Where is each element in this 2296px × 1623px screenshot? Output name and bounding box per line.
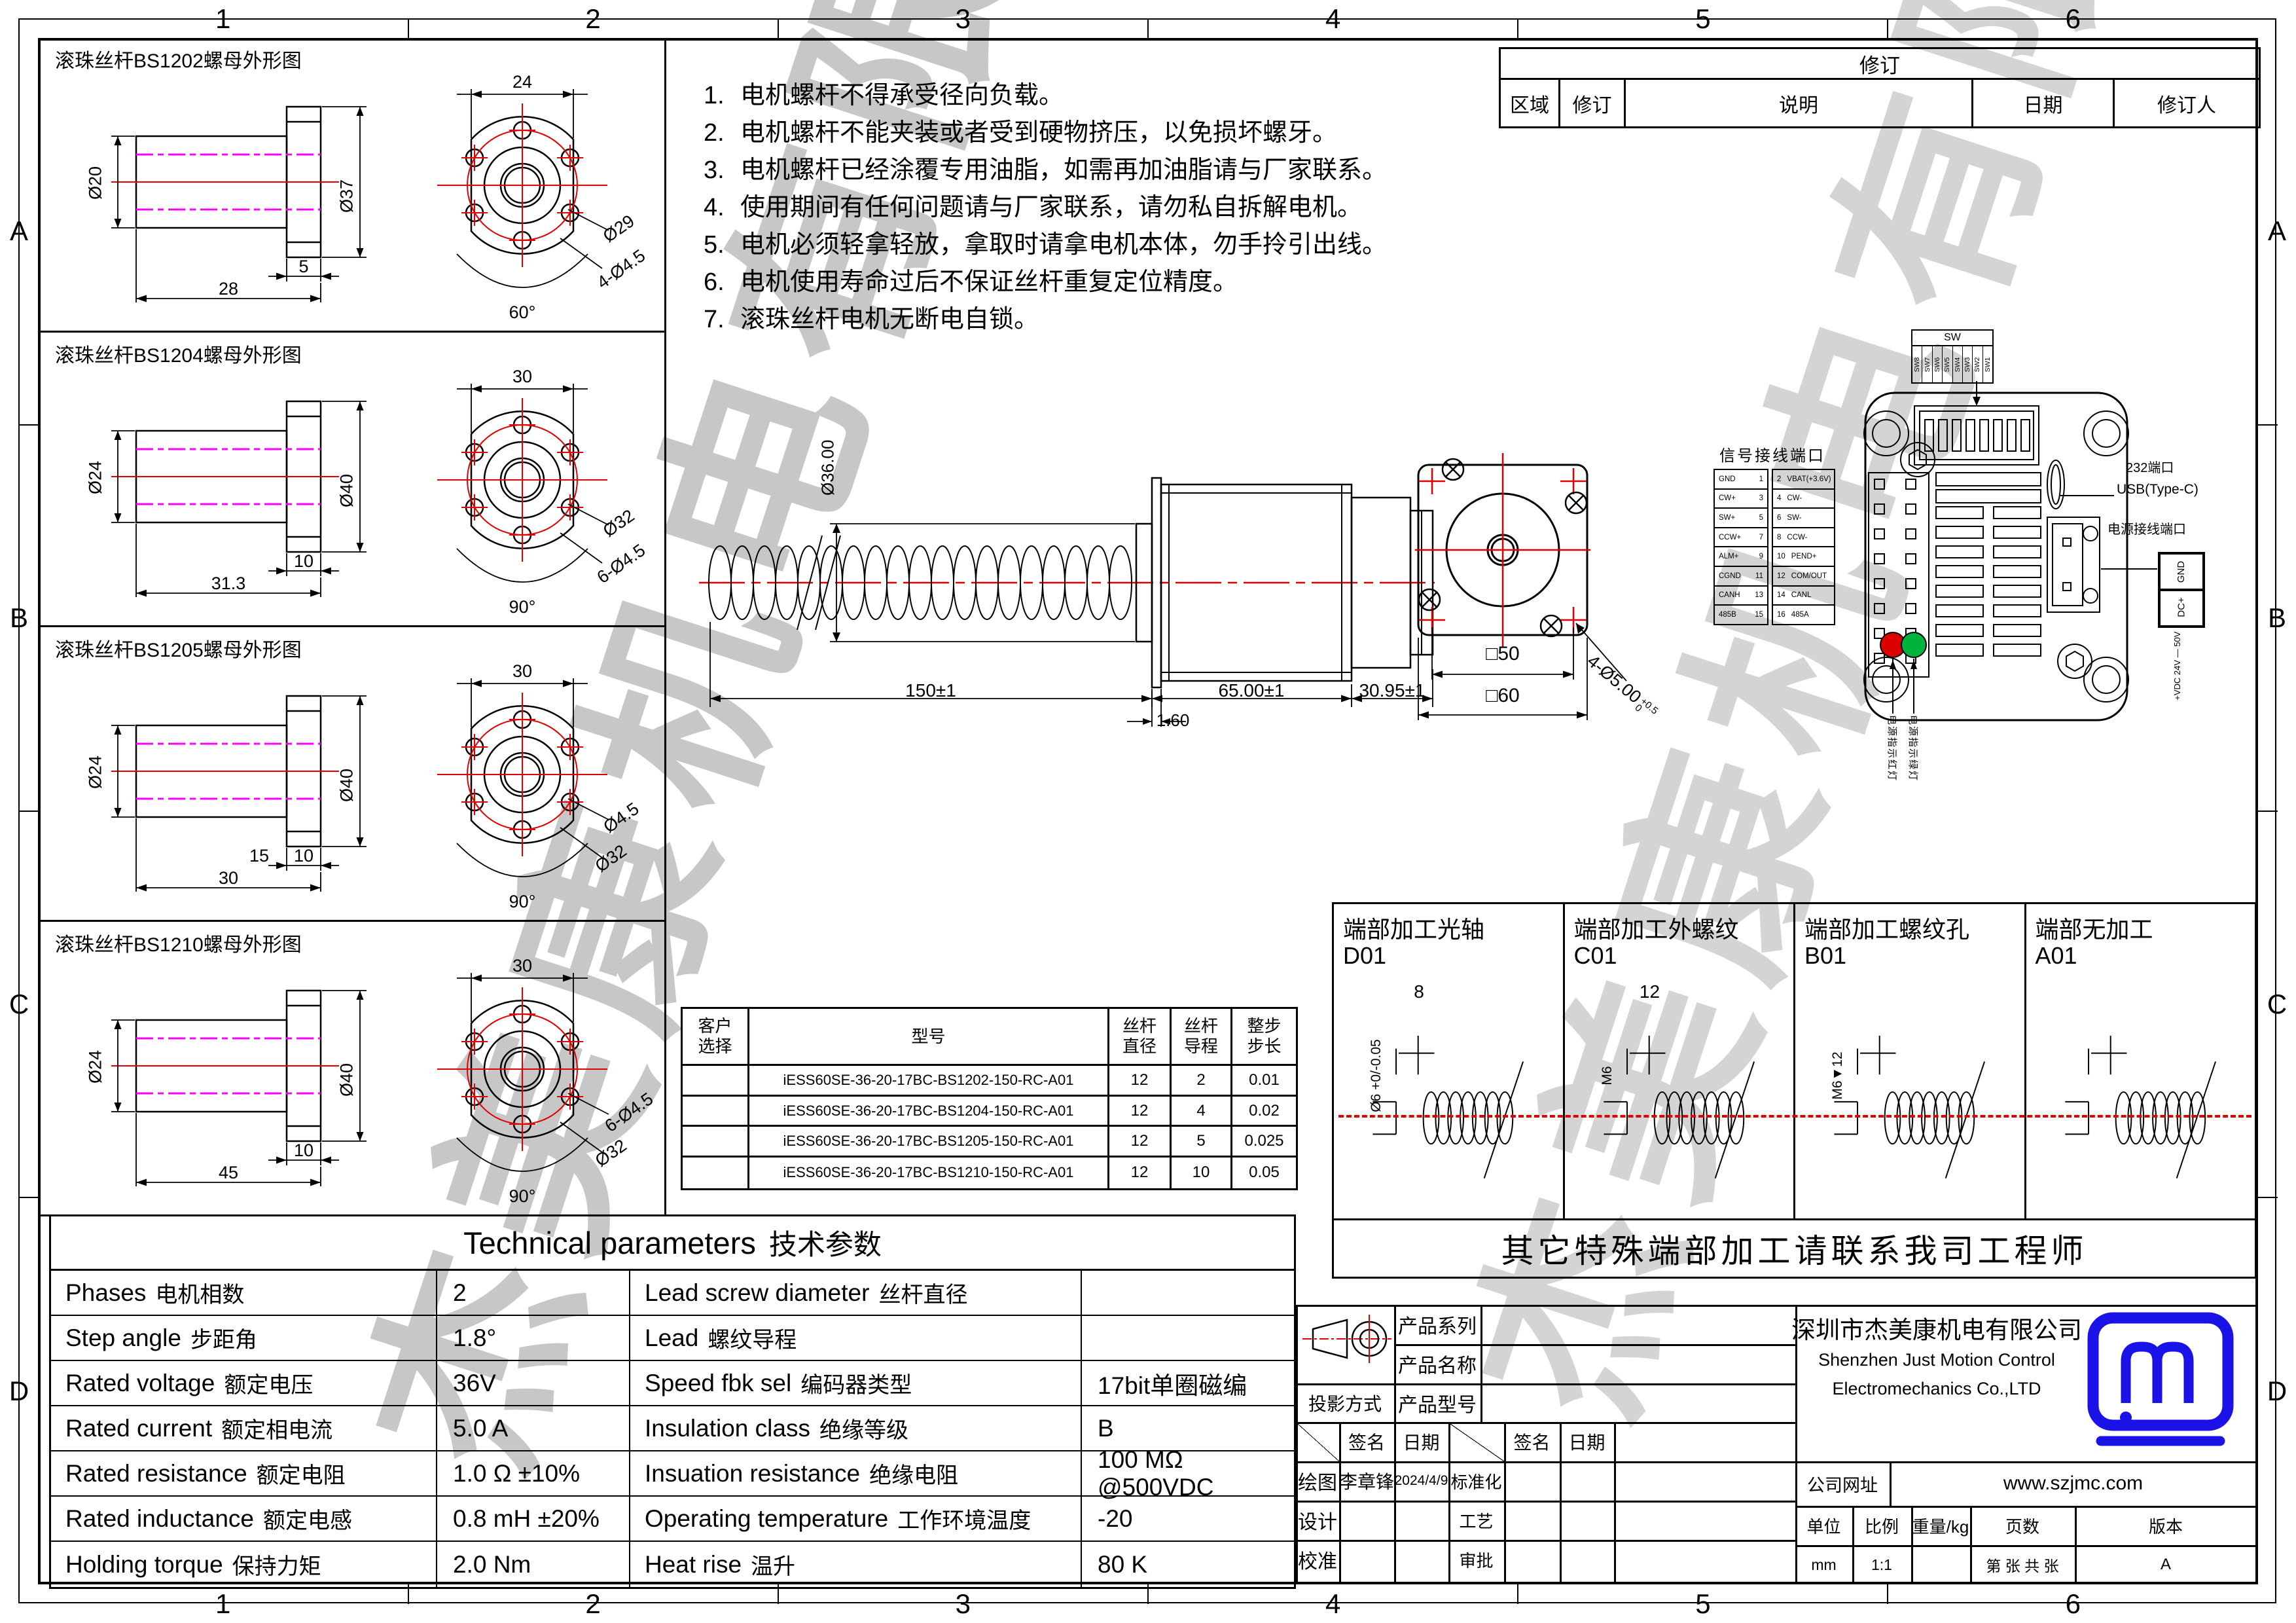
power-range-label: +VDC 24V — 50V xyxy=(2173,617,2182,715)
pin-number-left: 13 xyxy=(1755,591,1763,599)
tech-row: Holding torque保持力矩 2.0 Nm Heat rise温升 80… xyxy=(51,1542,1294,1587)
pin-name-right: CW- xyxy=(1787,494,1802,502)
sw-label-cell: SW3 xyxy=(1963,346,1973,382)
sw-label: SW3 xyxy=(1964,357,1971,372)
revision-col-desc: 说明 xyxy=(1626,80,1973,126)
note-number: 6. xyxy=(704,264,740,301)
zone-label: 1 xyxy=(38,1589,408,1619)
nut-panel: 滚珠丝杆BS1205螺母外形图 Ø24 Ø40 10 15 30 30 Ø4.5… xyxy=(38,627,664,922)
thread-drawing xyxy=(2026,963,2255,1218)
note-text: 电机螺杆已经涂覆专用油脂，如需再加油脂请与厂家联系。 xyxy=(740,152,1387,189)
param-name-en: Lead screw diameter xyxy=(645,1279,869,1307)
zone-label: A xyxy=(2262,38,2292,425)
pin-name-left: CANH xyxy=(1719,591,1740,599)
param-name-en: Rated inductance xyxy=(65,1505,254,1533)
pin-number-left: 5 xyxy=(1759,514,1763,522)
sw-label: SW4 xyxy=(1954,357,1962,372)
signal-row: CANH13 14CANL xyxy=(1713,587,1835,606)
pin-number-right: 10 xyxy=(1777,553,1785,560)
param-value: 5.0 A xyxy=(453,1415,508,1442)
param-name-en: Rated voltage xyxy=(65,1370,215,1397)
dim-outer-dia: Ø40 xyxy=(337,1049,357,1112)
end-option-column: 端部加工光轴 D01 8 Ø6 +0/-0.05 xyxy=(1334,904,1565,1218)
model-number: iESS60SE-36-20-17BC-BS1202-150-RC-A01 xyxy=(749,1066,1109,1097)
product-name-value xyxy=(1480,1344,1795,1383)
note-number: 2. xyxy=(704,115,740,152)
param-name-en: Operating temperature xyxy=(645,1505,888,1533)
signal-row: GND1 2VBAT(+3.6V) xyxy=(1713,470,1835,490)
pin-number-right: 16 xyxy=(1777,611,1785,619)
end-option-column: 端部加工外螺纹 C01 12 M6 xyxy=(1565,904,1796,1218)
pin-name-right: CCW- xyxy=(1787,534,1807,541)
power-port-title: 电源接线端口 xyxy=(2081,522,2212,537)
dim-len-c: 31.3 xyxy=(202,574,255,594)
end-option-title: 端部加工螺纹孔 xyxy=(1804,911,1969,945)
dim-plate-thickness: 1.60 xyxy=(1147,711,1199,730)
pin-number-left: 3 xyxy=(1759,494,1763,502)
note-line: 6. 电机使用寿命过后不保证丝杆重复定位精度。 xyxy=(704,264,1515,301)
param-name-cn: 步距角 xyxy=(190,1322,257,1354)
revision-col-area: 区域 xyxy=(1501,80,1560,126)
sw-label: SW8 xyxy=(1913,357,1921,372)
sw-label-cell: SW2 xyxy=(1973,346,1982,382)
pin-number-right: 2 xyxy=(1777,475,1781,483)
dim-len-c: 30 xyxy=(202,868,255,888)
company-name-en1: Shenzhen Just Motion Control xyxy=(1795,1346,2078,1374)
end-option-dia: M6▼12 xyxy=(1830,1027,1846,1125)
zone-letters-left: ABCD xyxy=(4,38,34,1584)
dim-len-c: 28 xyxy=(202,279,255,299)
signal-row: CW+3 4CW- xyxy=(1713,490,1835,509)
header-select: 客户 选择 xyxy=(683,1009,749,1066)
company-logo xyxy=(2081,1313,2238,1451)
select-cell[interactable] xyxy=(683,1158,749,1188)
sw-table-labels: SW8SW7SW6SW5SW4SW3SW2SW1 xyxy=(1911,346,1994,384)
tech-row: Phases电机相数 2 Lead screw diameter丝杆直径 xyxy=(51,1271,1294,1316)
pin-name-left: CCW+ xyxy=(1719,534,1741,541)
dim-square-60: □60 xyxy=(1470,685,1535,706)
screw-lead: 10 xyxy=(1172,1158,1232,1188)
dim-inner-dia: Ø24 xyxy=(86,741,106,804)
param-value: B xyxy=(1098,1415,1114,1442)
dim-flange-dia: Ø36.00 xyxy=(819,425,838,510)
dim-front-width: 24 xyxy=(496,72,548,92)
full-step: 0.01 xyxy=(1232,1066,1296,1097)
end-option-code: A01 xyxy=(2036,942,2077,970)
dim-len-c: 45 xyxy=(202,1163,255,1183)
role-row: 设计 xyxy=(1296,1501,1448,1540)
param-value: -20 xyxy=(1098,1505,1132,1533)
pin-name-right: 485A xyxy=(1791,611,1809,619)
end-option-column: 端部无加工 A01 xyxy=(2026,904,2255,1218)
screw-lead: 4 xyxy=(1172,1097,1232,1127)
roles-left: 绘图 李章锋 2024/4/9 设计 校准 xyxy=(1296,1461,1448,1579)
zone-label: 4 xyxy=(1148,4,1518,34)
projection-symbol xyxy=(1299,1307,1394,1381)
pin-number-right: 8 xyxy=(1777,534,1781,541)
model-row: iESS60SE-36-20-17BC-BS1210-150-RC-A01 12… xyxy=(683,1158,1296,1188)
role-label: 工艺 xyxy=(1448,1501,1504,1540)
date-header-left: 日期 xyxy=(1394,1422,1448,1461)
zone-label: 1 xyxy=(38,4,408,34)
param-name-en: Step angle xyxy=(65,1324,181,1352)
model-table-header: 客户 选择 型号 丝杆 直径 丝杆 导程 整步 步长 xyxy=(683,1009,1296,1066)
note-line: 7. 滚珠丝杆电机无断电自锁。 xyxy=(704,301,1515,338)
zone-label: 2 xyxy=(408,4,778,34)
pin-number-left: 15 xyxy=(1755,611,1763,619)
tech-row: Rated voltage额定电压 36V Speed fbk sel编码器类型… xyxy=(51,1361,1294,1406)
nut-panel-title: 滚珠丝杆BS1202螺母外形图 xyxy=(55,45,302,73)
role-date xyxy=(1394,1540,1448,1579)
company-name-cn: 深圳市杰美康机电有限公司 xyxy=(1795,1311,2078,1345)
param-name-cn: 工作环境温度 xyxy=(897,1503,1031,1535)
scale-value: 1:1 xyxy=(1852,1545,1911,1584)
power-leader-line xyxy=(2101,568,2157,570)
dim-len-a: 10 xyxy=(284,1140,323,1161)
revision-col-rev: 修订 xyxy=(1560,80,1626,126)
param-name-cn: 绝缘电阻 xyxy=(869,1457,958,1489)
signal-row: CGND11 12COM/OUT xyxy=(1713,567,1835,587)
usb-leader-line xyxy=(2060,495,2114,496)
note-line: 3. 电机螺杆已经涂覆专用油脂，如需再加油脂请与厂家联系。 xyxy=(704,152,1515,189)
product-model-value xyxy=(1480,1383,1795,1422)
sw-label: SW7 xyxy=(1924,357,1931,372)
sw-label: SW2 xyxy=(1973,357,1981,372)
param-value: 17bit单圈磁编 xyxy=(1098,1366,1247,1401)
dim-front-width: 30 xyxy=(496,367,548,387)
pin-name-right: COM/OUT xyxy=(1791,572,1827,580)
header-step: 整步 步长 xyxy=(1232,1009,1296,1066)
end-option-code: D01 xyxy=(1343,942,1386,970)
note-number: 7. xyxy=(704,301,740,338)
port-232-label: 232端口 xyxy=(2126,461,2174,475)
param-name-cn: 额定电阻 xyxy=(257,1457,346,1489)
zone-letters-right: ABCD xyxy=(2262,38,2292,1584)
dim-inner-dia: Ø24 xyxy=(86,1036,106,1099)
dim-inner-dia: Ø24 xyxy=(86,447,106,509)
power-pin-gnd: GND xyxy=(2158,552,2205,591)
role-date: 2024/4/9 xyxy=(1394,1461,1448,1501)
zone-label: 4 xyxy=(1148,1589,1518,1619)
pin-name-left: 485B xyxy=(1719,611,1736,619)
dc-pin-label: DC+ xyxy=(2176,597,2187,617)
param-name-en: Lead xyxy=(645,1324,698,1352)
role-label: 审批 xyxy=(1448,1540,1504,1579)
sw-table-title: SW xyxy=(1911,329,1994,346)
pin-number-right: 12 xyxy=(1777,572,1785,580)
usb-type-c-label: USB(Type-C) xyxy=(2117,482,2198,497)
param-value: 80 K xyxy=(1098,1551,1147,1578)
model-row: iESS60SE-36-20-17BC-BS1205-150-RC-A01 12… xyxy=(683,1127,1296,1158)
company-name-en2: Electromechanics Co.,LTD xyxy=(1795,1375,2078,1402)
nut-panel-title: 滚珠丝杆BS1205螺母外形图 xyxy=(55,634,302,663)
model-row: iESS60SE-36-20-17BC-BS1202-150-RC-A01 12… xyxy=(683,1066,1296,1097)
dim-outer-dia: Ø37 xyxy=(337,165,357,228)
zone-label: C xyxy=(2262,811,2292,1198)
dim-front-width: 30 xyxy=(496,661,548,682)
select-cell[interactable] xyxy=(683,1066,749,1097)
role-row: 校准 xyxy=(1296,1540,1448,1579)
signal-row: CCW+7 8CCW- xyxy=(1713,528,1835,548)
param-name-cn: 编码器类型 xyxy=(800,1367,912,1399)
screw-dia: 12 xyxy=(1109,1158,1172,1188)
dim-len-b: 15 xyxy=(240,846,279,866)
website-url[interactable]: www.szjmc.com xyxy=(1890,1461,2257,1506)
sw-label-cell: SW8 xyxy=(1912,346,1922,382)
role-date xyxy=(1560,1540,1614,1579)
pin-name-left: CGND xyxy=(1719,572,1741,580)
role-signature xyxy=(1339,1501,1394,1540)
revision-table: 修订 区域 修订 说明 日期 修订人 xyxy=(1499,47,2261,128)
param-name-en: Insulation class xyxy=(645,1415,810,1442)
revision-col-by: 修订人 xyxy=(2115,80,2259,126)
dim-len-a: 10 xyxy=(284,846,323,866)
param-name-cn: 电机相数 xyxy=(155,1277,244,1309)
param-value: 1.8° xyxy=(453,1324,496,1352)
param-name-en: Phases xyxy=(65,1279,146,1307)
role-signature xyxy=(1504,1461,1560,1501)
diagonal-header-cell xyxy=(1450,1424,1504,1461)
param-name-en: Insuation resistance xyxy=(645,1460,860,1487)
thread-drawing xyxy=(1565,963,1794,1218)
signal-row: ALM+9 10PEND+ xyxy=(1713,547,1835,567)
header-lead: 丝杆 导程 xyxy=(1172,1009,1232,1066)
pin-number-left: 1 xyxy=(1759,475,1763,483)
zone-label: D xyxy=(4,1198,34,1585)
dim-len-a: 10 xyxy=(284,551,323,572)
screw-dia: 12 xyxy=(1109,1127,1172,1158)
dim-angle: 90° xyxy=(496,1186,548,1207)
note-line: 2. 电机螺杆不能夹装或者受到硬物挤压，以免损坏螺牙。 xyxy=(704,115,1515,152)
screw-lead: 5 xyxy=(1172,1127,1232,1158)
unit-label: 单位 xyxy=(1795,1506,1852,1545)
website-label: 公司网址 xyxy=(1795,1461,1890,1506)
end-options-centerline xyxy=(1338,1115,2251,1118)
pin-name-left: SW+ xyxy=(1719,514,1735,522)
param-value: 36V xyxy=(453,1370,496,1397)
dim-square-50: □50 xyxy=(1470,643,1535,665)
model-number: iESS60SE-36-20-17BC-BS1204-150-RC-A01 xyxy=(749,1097,1109,1127)
sw-label: SW5 xyxy=(1943,357,1951,372)
model-selection-table: 客户 选择 型号 丝杆 直径 丝杆 导程 整步 步长 iESS60SE-36-2… xyxy=(681,1007,1298,1190)
usage-notes: 1. 电机螺杆不得承受径向负载。 2. 电机螺杆不能夹装或者受到硬物挤压，以免损… xyxy=(704,77,1515,338)
role-date xyxy=(1560,1461,1614,1501)
end-option-length: 12 xyxy=(1627,981,1673,1002)
full-step: 0.05 xyxy=(1232,1158,1296,1188)
param-name-cn: 温升 xyxy=(751,1548,795,1580)
param-name-cn: 额定电感 xyxy=(263,1503,352,1535)
roles-right: 标准化 工艺 审批 xyxy=(1448,1461,1614,1579)
note-number: 4. xyxy=(704,189,740,227)
tech-row: Rated inductance额定电感 0.8 mH ±20% Operati… xyxy=(51,1497,1294,1542)
zone-label: 6 xyxy=(1888,4,2258,34)
end-option-dia: M6 xyxy=(1600,1027,1615,1125)
pin-number-right: 4 xyxy=(1777,494,1781,502)
diagonal-header-cell xyxy=(1298,1424,1339,1461)
ballscrew-nut-panels: 滚珠丝杆BS1202螺母外形图 Ø20 Ø37 5 28 24 Ø29 4-Ø4… xyxy=(38,38,666,1216)
zone-label: B xyxy=(2262,425,2292,812)
signal-port-title: 信号接线端口 xyxy=(1702,448,1843,465)
nut-panel: 滚珠丝杆BS1210螺母外形图 Ø24 Ø40 10 45 30 6-Ø4.5 … xyxy=(38,922,664,1216)
param-value: 0.8 mH ±20% xyxy=(453,1505,600,1533)
gnd-pin-label: GND xyxy=(2176,560,2187,582)
param-name-en: Rated resistance xyxy=(65,1460,247,1487)
led-green-label: 电源指示绿灯 xyxy=(1907,715,1920,782)
zone-label: 6 xyxy=(1888,1589,2258,1619)
product-model-label: 产品型号 xyxy=(1394,1383,1480,1422)
note-text: 电机必须轻拿轻放，拿取时请拿电机本体，勿手拎引出线。 xyxy=(740,227,1387,264)
param-name-en: Holding torque xyxy=(65,1551,223,1578)
driver-rear-view xyxy=(1852,308,2140,877)
unit-value: mm xyxy=(1795,1545,1852,1584)
screw-dia: 12 xyxy=(1109,1066,1172,1097)
tech-row: Step angle步距角 1.8° Lead螺纹导程 xyxy=(51,1316,1294,1361)
header-dia: 丝杆 直径 xyxy=(1109,1009,1172,1066)
dim-len-a: 5 xyxy=(284,257,323,277)
select-cell[interactable] xyxy=(683,1097,749,1127)
note-number: 1. xyxy=(704,77,740,115)
pin-name-right: VBAT(+3.6V) xyxy=(1787,475,1831,483)
signal-row: 485B15 16485A xyxy=(1713,606,1835,625)
pin-number-right: 14 xyxy=(1777,591,1785,599)
role-date xyxy=(1394,1501,1448,1540)
note-line: 4. 使用期间有任何问题请与厂家联系，请勿私自拆解电机。 xyxy=(704,189,1515,227)
end-machining-options: 端部加工光轴 D01 8 Ø6 +0/-0.05 xyxy=(1332,902,2257,1279)
zone-label: B xyxy=(4,425,34,812)
note-line: 1. 电机螺杆不得承受径向负载。 xyxy=(704,77,1515,115)
drawing-sheet: 杰美康机电有限公司 杰美康机电有限公司 123456 123456 ABCD A… xyxy=(0,0,2296,1623)
zone-label: C xyxy=(4,811,34,1198)
revision-col-date: 日期 xyxy=(1973,80,2115,126)
zone-label: A xyxy=(4,38,34,425)
dim-front-width: 30 xyxy=(496,956,548,976)
pages-label: 页数 xyxy=(1970,1506,2075,1545)
param-name-en: Heat rise xyxy=(645,1551,742,1578)
led-red-label: 电源指示红灯 xyxy=(1886,715,1899,782)
sw-table: SW SW8SW7SW6SW5SW4SW3SW2SW1 xyxy=(1911,329,1994,384)
scale-label: 比例 xyxy=(1852,1506,1911,1545)
version-value: A xyxy=(2075,1545,2257,1584)
nut-panel: 滚珠丝杆BS1204螺母外形图 Ø24 Ø40 10 31.3 30 Ø32 6… xyxy=(38,333,664,627)
sw-label-cell: SW6 xyxy=(1933,346,1943,382)
note-number: 5. xyxy=(704,227,740,264)
role-row: 工艺 xyxy=(1448,1501,1614,1540)
zone-label: 3 xyxy=(778,1589,1148,1619)
param-name-en: Rated current xyxy=(65,1415,212,1442)
technical-parameters-table: Technical parameters 技术参数 Phases电机相数 2 L… xyxy=(49,1214,1296,1589)
pin-name-left: ALM+ xyxy=(1719,553,1738,560)
weight-label: 重量/kg xyxy=(1911,1506,1970,1545)
end-machining-note: 其它特殊端部加工请联系我司工程师 xyxy=(1334,1218,2255,1277)
role-row: 标准化 xyxy=(1448,1461,1614,1501)
end-option-title: 端部无加工 xyxy=(2036,911,2153,945)
pin-name-right: SW- xyxy=(1787,514,1801,522)
pin-name-left: CW+ xyxy=(1719,494,1736,502)
dim-inner-dia: Ø20 xyxy=(86,152,106,215)
screw-dia: 12 xyxy=(1109,1097,1172,1127)
sw-label-cell: SW7 xyxy=(1922,346,1932,382)
param-name-cn: 螺纹导程 xyxy=(708,1322,797,1354)
version-label: 版本 xyxy=(2075,1506,2257,1545)
sw-label-cell: SW1 xyxy=(1983,346,1992,382)
select-cell[interactable] xyxy=(683,1127,749,1158)
param-name-en: Speed fbk sel xyxy=(645,1370,791,1397)
revision-title: 修订 xyxy=(1501,49,2259,80)
zone-label: 2 xyxy=(408,1589,778,1619)
role-label: 绘图 xyxy=(1296,1461,1339,1501)
dim-body-length: 65.00±1 xyxy=(1199,681,1304,701)
note-text: 使用期间有任何问题请与厂家联系，请勿私自拆解电机。 xyxy=(740,189,1362,227)
signal-row: SW+5 6SW- xyxy=(1713,509,1835,528)
role-label: 设计 xyxy=(1296,1501,1339,1540)
role-signature xyxy=(1504,1501,1560,1540)
param-value: 100 MΩ @500VDC xyxy=(1098,1446,1298,1501)
param-value: 2.0 Nm xyxy=(453,1551,531,1578)
date-header-right: 日期 xyxy=(1560,1422,1614,1461)
nut-panel-title: 滚珠丝杆BS1204螺母外形图 xyxy=(55,339,302,368)
zone-label: D xyxy=(2262,1198,2292,1585)
end-option-code: B01 xyxy=(1804,942,1846,970)
role-date xyxy=(1560,1501,1614,1540)
header-model: 型号 xyxy=(749,1009,1109,1066)
tech-row: Rated resistance额定电阻 1.0 Ω ±10% Insuatio… xyxy=(51,1451,1294,1497)
pin-number-left: 11 xyxy=(1755,572,1763,580)
sign-header-left: 签名 xyxy=(1339,1422,1394,1461)
product-series-value xyxy=(1480,1305,1795,1344)
param-name-cn: 绝缘等级 xyxy=(819,1412,908,1444)
param-name-cn: 丝杆直径 xyxy=(878,1277,967,1309)
role-label: 校准 xyxy=(1296,1540,1339,1579)
param-name-cn: 额定相电流 xyxy=(221,1412,332,1444)
pin-number-right: 6 xyxy=(1777,514,1781,522)
weight-value xyxy=(1911,1545,1970,1584)
role-signature xyxy=(1504,1540,1560,1579)
model-row: iESS60SE-36-20-17BC-BS1204-150-RC-A01 12… xyxy=(683,1097,1296,1127)
zone-label: 3 xyxy=(778,4,1148,34)
param-value: 2 xyxy=(453,1279,467,1307)
role-signature xyxy=(1339,1540,1394,1579)
note-number: 3. xyxy=(704,152,740,189)
dim-angle: 60° xyxy=(496,302,548,323)
screw-lead: 2 xyxy=(1172,1066,1232,1097)
dim-screw-length: 150±1 xyxy=(885,681,977,701)
pin-name-right: CANL xyxy=(1791,591,1812,599)
end-option-title: 端部加工光轴 xyxy=(1343,911,1484,945)
param-value: 1.0 Ω ±10% xyxy=(453,1460,580,1487)
zone-numbers-bottom: 123456 xyxy=(38,1589,2258,1619)
tech-table-title: Technical parameters 技术参数 xyxy=(51,1216,1294,1271)
title-block: 投影方式 产品系列 产品名称 产品型号 签名 日期 签名 日期 绘图 李章锋 2… xyxy=(1296,1277,2257,1584)
role-row: 绘图 李章锋 2024/4/9 xyxy=(1296,1461,1448,1501)
role-row: 审批 xyxy=(1448,1540,1614,1579)
product-series-label: 产品系列 xyxy=(1394,1305,1480,1344)
tech-title-en: Technical parameters xyxy=(463,1225,756,1261)
end-option-column: 端部加工螺纹孔 B01 M6▼12 xyxy=(1795,904,2026,1218)
end-option-dia: Ø6 +0/-0.05 xyxy=(1369,1027,1384,1125)
zone-label: 5 xyxy=(1518,1589,1888,1619)
sw-label: SW6 xyxy=(1933,357,1941,372)
tech-title-cn: 技术参数 xyxy=(769,1222,882,1263)
note-text: 电机使用寿命过后不保证丝杆重复定位精度。 xyxy=(740,264,1238,301)
pin-number-left: 9 xyxy=(1759,553,1763,560)
note-line: 5. 电机必须轻拿轻放，拿取时请拿电机本体，勿手拎引出线。 xyxy=(704,227,1515,264)
param-name-cn: 保持力矩 xyxy=(232,1548,321,1580)
pin-number-left: 7 xyxy=(1759,534,1763,541)
zone-numbers-top: 123456 xyxy=(38,4,2258,34)
pin-name-left: GND xyxy=(1719,475,1736,483)
end-option-length: 8 xyxy=(1396,981,1442,1002)
projection-label: 投影方式 xyxy=(1296,1383,1394,1422)
